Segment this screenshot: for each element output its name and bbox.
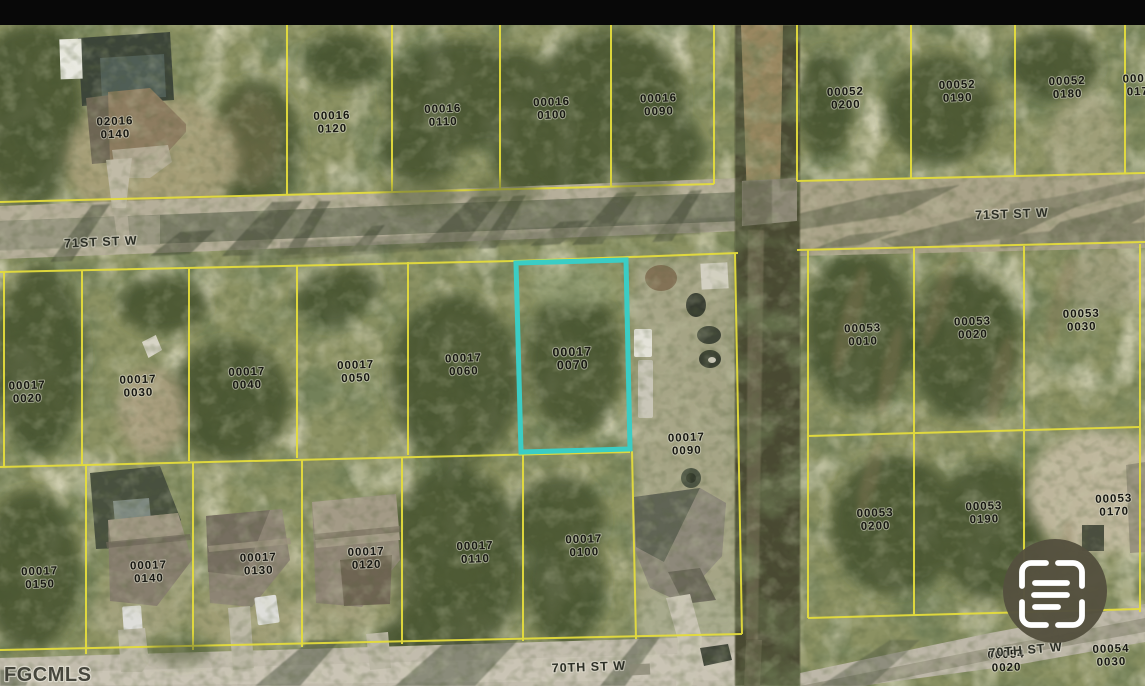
- svg-text:00054: 00054: [1092, 643, 1129, 656]
- svg-text:0100: 0100: [537, 109, 567, 122]
- svg-text:00017: 00017: [565, 533, 602, 546]
- svg-text:00017: 00017: [668, 431, 705, 444]
- svg-text:71ST ST W: 71ST ST W: [975, 206, 1049, 223]
- svg-text:02016: 02016: [96, 115, 133, 128]
- svg-text:00017: 00017: [456, 540, 493, 553]
- svg-text:0020: 0020: [13, 393, 43, 406]
- svg-text:0040: 0040: [232, 379, 262, 392]
- svg-text:0020: 0020: [992, 662, 1022, 675]
- svg-text:0030: 0030: [123, 387, 153, 400]
- svg-text:00017: 00017: [130, 559, 167, 572]
- svg-text:0010: 0010: [848, 335, 878, 348]
- svg-text:00053: 00053: [954, 315, 991, 328]
- svg-text:0050: 0050: [341, 372, 371, 385]
- svg-text:0110: 0110: [429, 116, 458, 129]
- svg-text:00052: 00052: [939, 79, 976, 92]
- svg-text:0130: 0130: [244, 565, 274, 578]
- svg-text:00017: 00017: [21, 565, 58, 578]
- svg-text:00017: 00017: [228, 366, 265, 379]
- svg-text:00016: 00016: [424, 103, 461, 116]
- svg-text:00053: 00053: [856, 507, 893, 520]
- svg-text:00017: 00017: [445, 352, 482, 365]
- svg-text:00017: 00017: [347, 546, 384, 559]
- svg-text:00017: 00017: [240, 551, 277, 564]
- svg-text:0140: 0140: [134, 572, 164, 585]
- svg-text:00053: 00053: [1063, 308, 1100, 321]
- svg-text:0170: 0170: [1127, 85, 1145, 98]
- svg-text:00052: 00052: [1048, 75, 1085, 88]
- svg-text:00017: 00017: [337, 359, 374, 372]
- svg-text:0030: 0030: [1096, 656, 1126, 669]
- svg-text:0090: 0090: [644, 105, 674, 118]
- svg-text:00052: 00052: [1122, 72, 1145, 85]
- svg-text:00053: 00053: [844, 322, 881, 335]
- svg-text:FGCMLS: FGCMLS: [4, 664, 91, 686]
- svg-text:70TH ST W: 70TH ST W: [551, 659, 626, 676]
- svg-text:0200: 0200: [861, 520, 891, 533]
- svg-text:0120: 0120: [317, 123, 347, 136]
- svg-text:0190: 0190: [943, 92, 973, 105]
- svg-text:00053: 00053: [965, 500, 1002, 513]
- svg-text:00053: 00053: [1095, 493, 1132, 506]
- svg-text:00017: 00017: [8, 379, 45, 392]
- svg-text:00016: 00016: [313, 110, 350, 123]
- svg-text:0190: 0190: [969, 513, 999, 526]
- svg-text:0150: 0150: [25, 578, 55, 591]
- svg-text:0200: 0200: [831, 99, 861, 112]
- svg-text:0170: 0170: [1099, 506, 1129, 519]
- svg-text:00017: 00017: [119, 374, 156, 387]
- svg-text:0020: 0020: [958, 328, 988, 341]
- svg-text:0180: 0180: [1053, 88, 1083, 101]
- svg-text:0100: 0100: [569, 546, 599, 559]
- svg-text:00052: 00052: [827, 86, 864, 99]
- svg-text:0090: 0090: [672, 445, 702, 458]
- svg-text:00016: 00016: [640, 92, 677, 105]
- svg-text:00016: 00016: [533, 96, 570, 109]
- svg-text:0120: 0120: [352, 559, 382, 572]
- svg-text:0140: 0140: [100, 128, 130, 141]
- svg-text:0070: 0070: [557, 357, 589, 372]
- svg-text:0060: 0060: [449, 365, 479, 378]
- svg-text:0030: 0030: [1067, 321, 1097, 334]
- svg-text:0110: 0110: [461, 553, 490, 566]
